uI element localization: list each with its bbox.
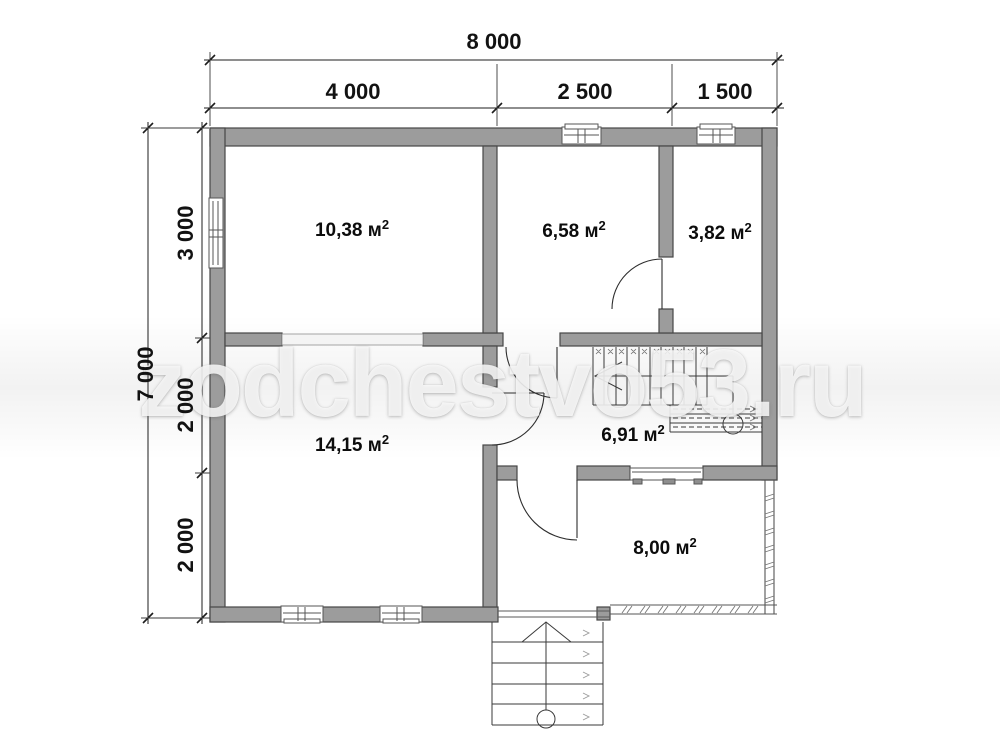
veranda-wall-hatching-right bbox=[765, 494, 774, 603]
wall-vert-2-top bbox=[659, 146, 673, 257]
wall-hall-bottom-c bbox=[703, 466, 777, 480]
wall-vert-1-bottom bbox=[483, 445, 497, 607]
wall-outer-top bbox=[210, 128, 777, 146]
dim-label-left-segment-3: 2 000 bbox=[175, 517, 197, 572]
window-veranda bbox=[630, 468, 703, 484]
door-hall-to-veranda bbox=[517, 480, 577, 540]
window-bottom-2 bbox=[380, 606, 422, 623]
watermark-text: zodchestvo53.ru bbox=[138, 329, 866, 439]
dim-label-left-segment-2: 2 000 bbox=[175, 377, 197, 432]
room-area-label-6: 8,00 м2 bbox=[633, 536, 697, 558]
room-area-label-5: 6,91 м2 bbox=[601, 423, 665, 445]
entrance-steps bbox=[492, 611, 610, 728]
dim-label-top-overall: 8 000 bbox=[466, 31, 521, 53]
floor-plan-page: zodchestvo53.ru 8 000 4 000 2 500 1 500 … bbox=[0, 0, 1000, 750]
steps-marks bbox=[583, 630, 589, 720]
dim-label-top-segment-3: 1 500 bbox=[697, 81, 752, 103]
dim-label-left-segment-1: 3 000 bbox=[175, 205, 197, 260]
wall-outer-bottom bbox=[210, 607, 498, 622]
wall-hall-bottom-a bbox=[497, 466, 517, 480]
dim-label-top-segment-2: 2 500 bbox=[557, 81, 612, 103]
veranda-wall-hatching-bottom bbox=[622, 606, 758, 613]
window-bottom-1 bbox=[281, 606, 323, 623]
wall-hall-bottom-b bbox=[577, 466, 630, 480]
dim-label-left-overall: 7 000 bbox=[135, 346, 157, 401]
entrance-threshold bbox=[498, 611, 610, 617]
room-area-label-1: 10,38 м2 bbox=[315, 218, 389, 240]
wall-corner-post bbox=[597, 607, 610, 620]
wall-vert-1-top bbox=[483, 146, 497, 333]
window-left-wall bbox=[209, 198, 223, 268]
room-area-label-4: 14,15 м2 bbox=[315, 433, 389, 455]
room-area-label-3: 3,82 м2 bbox=[688, 221, 752, 243]
door-room2-to-room3 bbox=[612, 259, 662, 309]
dim-label-top-segment-1: 4 000 bbox=[325, 81, 380, 103]
window-top-room2 bbox=[562, 124, 601, 144]
room-area-label-2: 6,58 м2 bbox=[542, 219, 606, 241]
window-top-room3 bbox=[697, 124, 735, 144]
